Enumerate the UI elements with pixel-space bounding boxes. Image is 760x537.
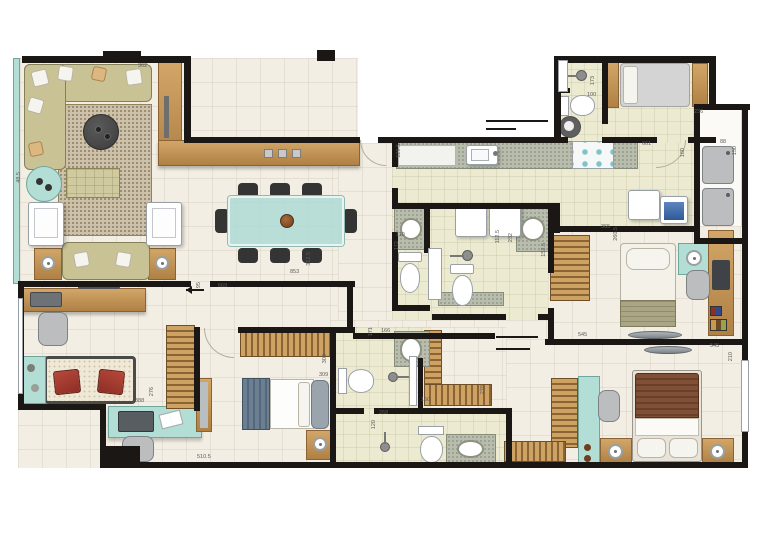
dimension-label: 180	[680, 148, 686, 157]
wall	[548, 226, 696, 232]
wall	[210, 281, 355, 287]
armchair-seat	[152, 208, 176, 238]
coffee-table	[83, 114, 119, 150]
wall	[392, 203, 556, 209]
dimension-label: 362	[138, 63, 147, 69]
bedm-pillow	[637, 438, 666, 458]
kitchen-sink-basin	[471, 149, 489, 161]
toilet-bowl	[452, 275, 473, 306]
poster	[710, 319, 727, 331]
wall	[238, 327, 355, 333]
floor-plan: 36248.5853312.595669129.5173100236661180…	[0, 0, 760, 537]
bed-maid-bench	[692, 63, 708, 107]
wall	[347, 281, 353, 333]
dining-chair	[215, 209, 229, 233]
bed2-pillow	[626, 248, 670, 270]
wall	[554, 56, 716, 63]
dimension-label: 312.5	[306, 252, 312, 266]
dimension-label: 100	[587, 92, 596, 98]
toilet-bowl	[420, 436, 443, 463]
armchair-seat	[34, 208, 58, 238]
dimension-label: 545	[710, 343, 719, 349]
wardrobe	[550, 235, 590, 301]
wall	[694, 110, 700, 244]
dimension-label: 166	[381, 328, 390, 334]
side-table-knob	[45, 184, 52, 191]
dimension-label: 853	[290, 269, 299, 275]
entry-arrow-head	[182, 286, 192, 294]
bedm-pillow	[669, 438, 698, 458]
dimension-label: 545	[578, 332, 587, 338]
toilet-tank	[418, 426, 444, 435]
shower-panel	[428, 248, 442, 300]
dimension-label: 260.5	[613, 227, 619, 241]
dimension-label: 150	[421, 397, 430, 403]
toilet-bowl	[570, 95, 595, 116]
balcony-window	[13, 58, 20, 284]
coffee-table-knob	[95, 126, 102, 133]
wall	[742, 104, 748, 360]
wall	[432, 314, 506, 320]
laundry-tub	[455, 205, 487, 237]
side-table-knob	[36, 178, 43, 185]
door-line	[496, 348, 530, 350]
shower-door	[558, 60, 568, 92]
sideboard-decor	[292, 149, 301, 158]
wall	[424, 203, 430, 253]
dimension-label: 171	[368, 327, 374, 336]
table-lamp	[41, 256, 55, 270]
dimension-label: 112.5	[495, 230, 501, 243]
dimension-label: 150	[732, 146, 738, 155]
dishwasher-panel	[664, 202, 684, 220]
wall-stub	[317, 50, 335, 61]
poster	[710, 306, 722, 316]
dimension-label: 276	[149, 387, 155, 396]
pedestal-sink	[559, 116, 581, 138]
desk-chair	[598, 390, 620, 422]
sideboard-shelf-slot	[164, 96, 169, 138]
desk-chair	[686, 270, 710, 300]
table-centerpiece	[280, 214, 294, 228]
wall	[392, 305, 430, 311]
table-lamp	[155, 256, 169, 270]
machine-knob	[726, 193, 730, 197]
wall	[353, 333, 495, 339]
dimension-label: 210	[728, 352, 734, 361]
bedm-blanket	[635, 373, 699, 418]
shower-panel	[409, 356, 417, 406]
wall	[374, 408, 512, 414]
bath-sink-oval	[457, 440, 484, 458]
bed3-headboard	[242, 378, 270, 430]
table-lamp	[313, 437, 327, 451]
dimension-label: 303	[322, 354, 328, 363]
dimension-label: 172	[394, 241, 400, 250]
table-lamp	[686, 250, 702, 266]
desk-decor	[584, 444, 591, 451]
dimension-label: 129.5	[396, 144, 402, 158]
dining-chair	[238, 248, 258, 263]
wall-tv	[628, 331, 682, 339]
table-lamp	[710, 444, 725, 459]
door-line	[486, 128, 516, 130]
ottoman-bench	[66, 168, 120, 198]
throw-pillow	[125, 68, 143, 86]
wall	[100, 462, 748, 468]
dimension-label: 268	[379, 410, 388, 416]
throw-pillow	[28, 141, 45, 158]
wardrobe	[504, 441, 566, 462]
bed2-blanket	[620, 300, 676, 327]
dimension-label: 110	[396, 232, 405, 238]
wall	[103, 51, 141, 63]
dining-chair	[302, 248, 322, 263]
bedm-sheet	[635, 418, 699, 436]
window	[741, 360, 749, 432]
machine-knob	[726, 151, 730, 155]
sideboard-decor	[278, 149, 287, 158]
wall	[18, 404, 106, 410]
sofa-cushion-red	[53, 369, 81, 396]
shelf-decor	[27, 364, 35, 372]
office-chair	[38, 312, 68, 346]
round-side-table	[26, 166, 62, 202]
dining-chair	[343, 209, 357, 233]
toilet-bowl	[348, 369, 374, 393]
throw-pillow	[73, 251, 90, 268]
toilet-tank	[450, 264, 474, 274]
wall	[554, 137, 568, 143]
wall	[602, 60, 608, 124]
toilet-bowl	[400, 263, 420, 293]
shelf-decor	[31, 384, 39, 392]
bed3-bolster	[311, 380, 329, 429]
wall	[18, 281, 191, 287]
dimension-label: 236	[694, 109, 703, 115]
kitchen-cabinet	[398, 145, 456, 166]
door-line	[496, 336, 538, 338]
throw-pillow	[115, 251, 132, 268]
office-computer	[30, 292, 62, 307]
laundry-tub	[489, 205, 521, 237]
toilet-tank	[338, 368, 347, 394]
sideboard-decor	[264, 149, 273, 158]
dimension-label: 309	[319, 372, 328, 378]
wall	[184, 56, 191, 143]
bath-sink	[521, 217, 545, 241]
dimension-label: 95	[196, 282, 202, 288]
wall	[194, 327, 200, 411]
wall	[709, 56, 716, 110]
sideboard-horizontal	[158, 140, 360, 166]
wall	[694, 238, 748, 244]
dimension-label: 669	[218, 283, 227, 289]
dining-chair	[270, 248, 290, 263]
dimension-label: 278	[480, 385, 486, 394]
wardrobe	[240, 330, 336, 357]
wall	[330, 408, 364, 414]
dimension-label: 661	[642, 141, 651, 147]
bed-maid-pillow	[623, 66, 638, 104]
mirror-glass	[200, 382, 208, 428]
door-line	[486, 120, 548, 122]
dimension-label: 388	[135, 398, 144, 404]
coffee-table-knob	[104, 133, 111, 140]
desk-monitor	[712, 260, 730, 290]
throw-pillow	[91, 66, 108, 83]
dimension-label: 48.5	[16, 172, 22, 183]
refrigerator	[628, 190, 660, 220]
dimension-label: 173	[590, 76, 596, 85]
shower-arm	[396, 376, 410, 378]
dimension-label: 120	[371, 420, 377, 429]
toilet-tank	[560, 96, 569, 116]
shower-arm	[450, 255, 464, 257]
wardrobe	[166, 325, 195, 409]
toilet-tank	[398, 252, 422, 262]
dimension-label: 152.5	[541, 243, 547, 257]
wall-tv	[644, 346, 692, 354]
shower-arm	[384, 432, 386, 444]
wall	[506, 408, 512, 468]
shower-head	[576, 70, 587, 81]
desk-decor	[584, 455, 591, 462]
dressing-desk	[578, 376, 600, 466]
dimension-label: 365	[601, 224, 610, 230]
wall	[184, 137, 360, 143]
bed3-pillow	[298, 382, 310, 427]
wall	[378, 137, 560, 143]
wall	[330, 327, 336, 468]
window	[18, 298, 23, 394]
study-laptop	[118, 411, 154, 432]
throw-pillow	[57, 65, 74, 82]
kitchen-faucet	[493, 151, 498, 156]
wall	[688, 137, 716, 143]
wardrobe	[551, 378, 578, 448]
dimension-label: 88	[720, 139, 726, 145]
cooktop	[572, 141, 614, 169]
wall	[538, 314, 554, 320]
dimension-label: 510.5	[197, 454, 211, 460]
table-lamp	[608, 444, 623, 459]
sofa-cushion-red	[97, 369, 125, 396]
dimension-label: 232	[508, 233, 514, 242]
